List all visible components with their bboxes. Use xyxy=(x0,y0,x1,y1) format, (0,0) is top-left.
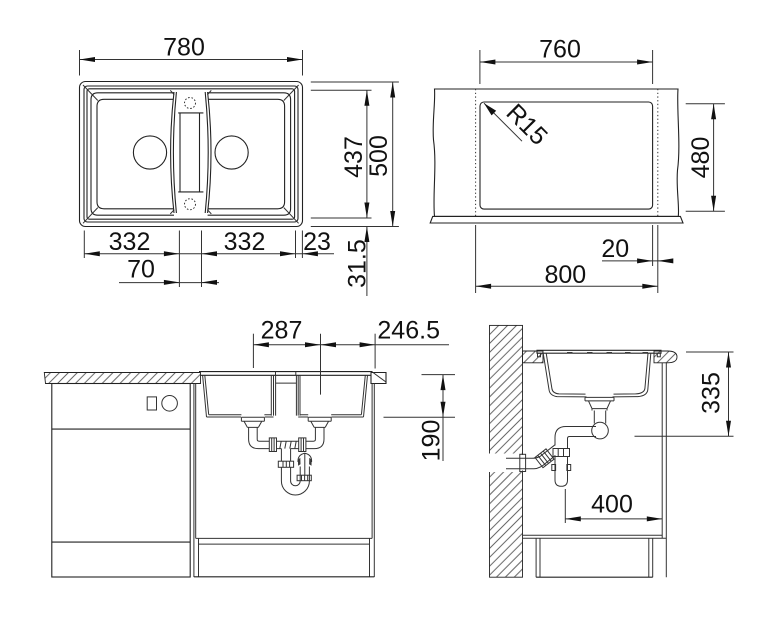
svg-text:400: 400 xyxy=(591,491,633,519)
svg-text:20: 20 xyxy=(601,235,629,263)
svg-text:335: 335 xyxy=(698,372,726,414)
svg-text:332: 332 xyxy=(224,228,266,256)
svg-text:190: 190 xyxy=(417,420,445,462)
svg-text:437: 437 xyxy=(340,136,368,178)
svg-text:23: 23 xyxy=(303,228,331,256)
svg-text:31.5: 31.5 xyxy=(344,239,372,288)
svg-text:332: 332 xyxy=(109,228,151,256)
svg-text:780: 780 xyxy=(163,34,205,62)
svg-text:800: 800 xyxy=(544,261,586,289)
svg-text:500: 500 xyxy=(365,135,393,177)
svg-text:246.5: 246.5 xyxy=(377,317,440,345)
svg-text:760: 760 xyxy=(539,36,581,64)
svg-text:480: 480 xyxy=(687,137,715,179)
svg-text:70: 70 xyxy=(127,256,155,284)
svg-text:287: 287 xyxy=(261,317,303,345)
